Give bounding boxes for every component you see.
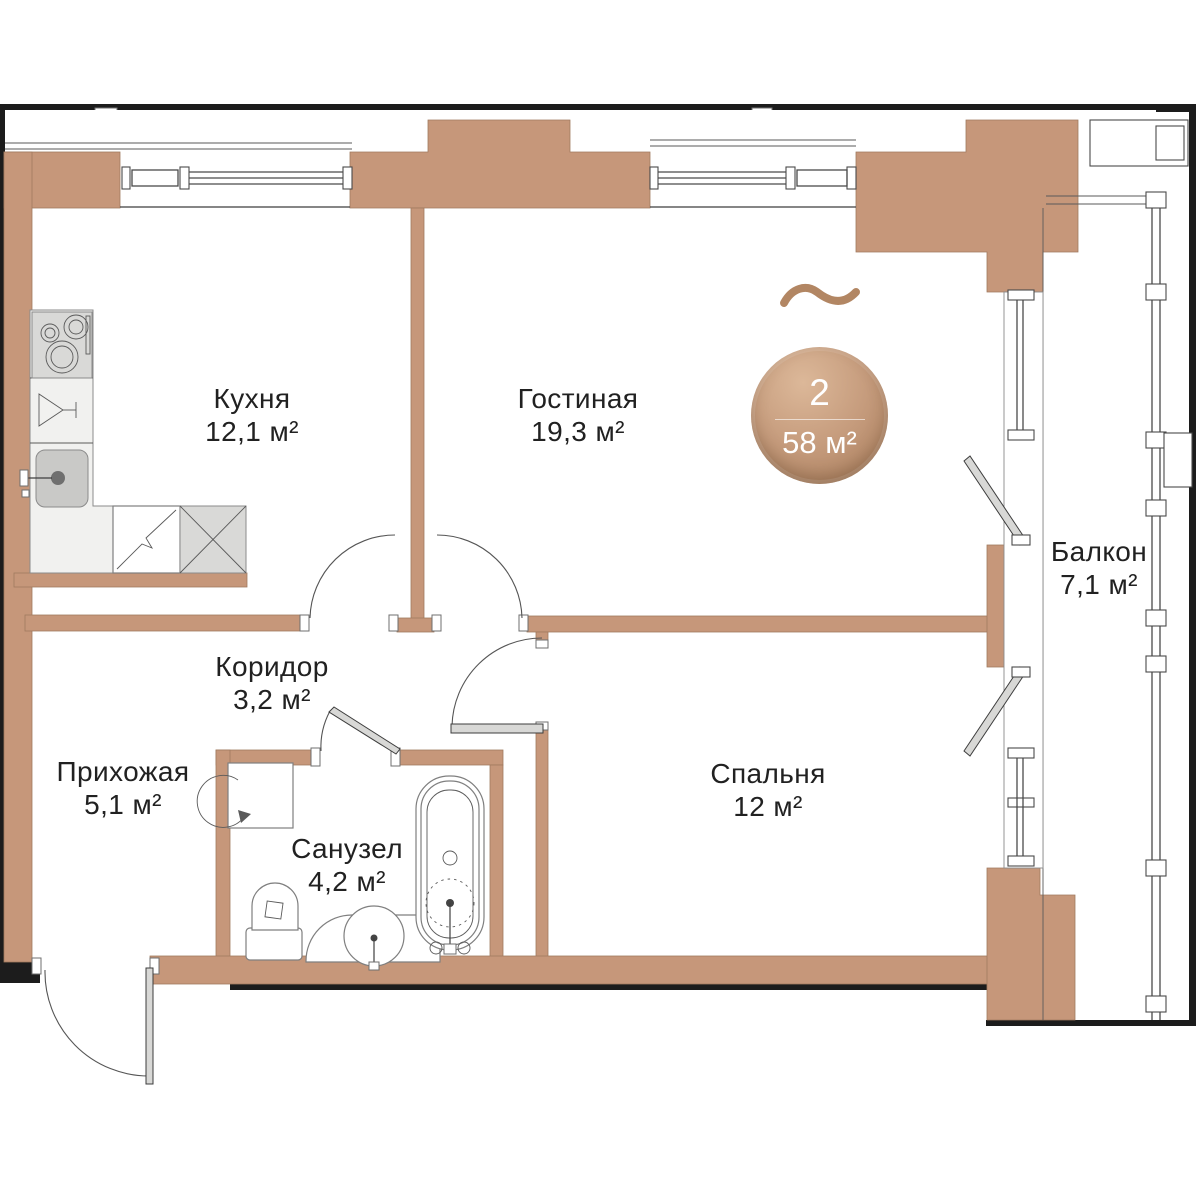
wall-left: [4, 152, 32, 962]
entrance-door-leaf: [146, 968, 153, 1084]
apartment-badge: 2 58 м²: [751, 347, 888, 484]
room-name: Коридор: [215, 650, 328, 683]
room-area: 7,1 м²: [1051, 568, 1147, 601]
wall-bathroom-north-right: [393, 750, 503, 765]
room-label-hallway: Прихожая 5,1 м²: [57, 755, 190, 821]
balcony-glazing-mullions: [1146, 192, 1166, 1012]
room-name: Гостиная: [518, 382, 639, 415]
room-label-corridor: Коридор 3,2 м²: [215, 650, 328, 716]
room-name: Кухня: [205, 382, 299, 415]
wall-kitchen-counter-edge: [14, 573, 247, 587]
bathroom-door-leaf: [329, 707, 400, 754]
room-area: 3,2 м²: [215, 683, 328, 716]
room-name: Балкон: [1051, 535, 1147, 568]
wall-kitchen-living-divider: [411, 208, 424, 620]
wall-bathroom-east: [490, 765, 503, 962]
living-door-arc: [437, 535, 522, 618]
floor-plan: Кухня 12,1 м² Гостиная 19,3 м² Балкон 7,…: [0, 0, 1200, 1200]
floor-plan-svg: [0, 0, 1200, 1200]
badge-divider: [775, 419, 865, 420]
kitchen-door-arc: [310, 535, 395, 618]
room-area: 12,1 м²: [205, 415, 299, 448]
room-label-living: Гостиная 19,3 м²: [518, 382, 639, 448]
room-label-kitchen: Кухня 12,1 м²: [205, 382, 299, 448]
room-name: Санузел: [291, 832, 403, 865]
wall-balcony-bottom-pier: [987, 868, 1075, 1020]
room-name: Спальня: [710, 757, 825, 790]
entrance-door-arc: [45, 970, 149, 1076]
badge-total-area: 58 м²: [782, 427, 857, 458]
room-name: Прихожая: [57, 755, 190, 788]
bedroom-door-arc: [452, 638, 542, 726]
stove-icon: [32, 312, 92, 378]
badge-rooms-count: 2: [809, 374, 830, 411]
balcony-exterior-box: [1164, 433, 1192, 487]
wall-corridor-north: [25, 615, 305, 631]
bedroom-door-leaf: [451, 724, 543, 733]
fridge-square-icon: [113, 506, 180, 573]
wall-living-bedroom: [527, 616, 988, 632]
bathroom-door-arc: [321, 711, 330, 751]
room-label-bedroom: Спальня 12 м²: [710, 757, 825, 823]
washing-machine-icon: [197, 763, 293, 828]
wall-bedroom-west: [536, 730, 548, 962]
wall-divider-tee: [397, 618, 434, 632]
wave-icon: [784, 288, 856, 303]
room-area: 4,2 м²: [291, 865, 403, 898]
room-label-balcony: Балкон 7,1 м²: [1051, 535, 1147, 601]
room-area: 19,3 м²: [518, 415, 639, 448]
cabinet-cross-icon: [180, 506, 246, 573]
room-area: 12 м²: [710, 790, 825, 823]
room-area: 5,1 м²: [57, 788, 190, 821]
room-label-bathroom: Санузел 4,2 м²: [291, 832, 403, 898]
bathtub-icon: [416, 776, 484, 954]
